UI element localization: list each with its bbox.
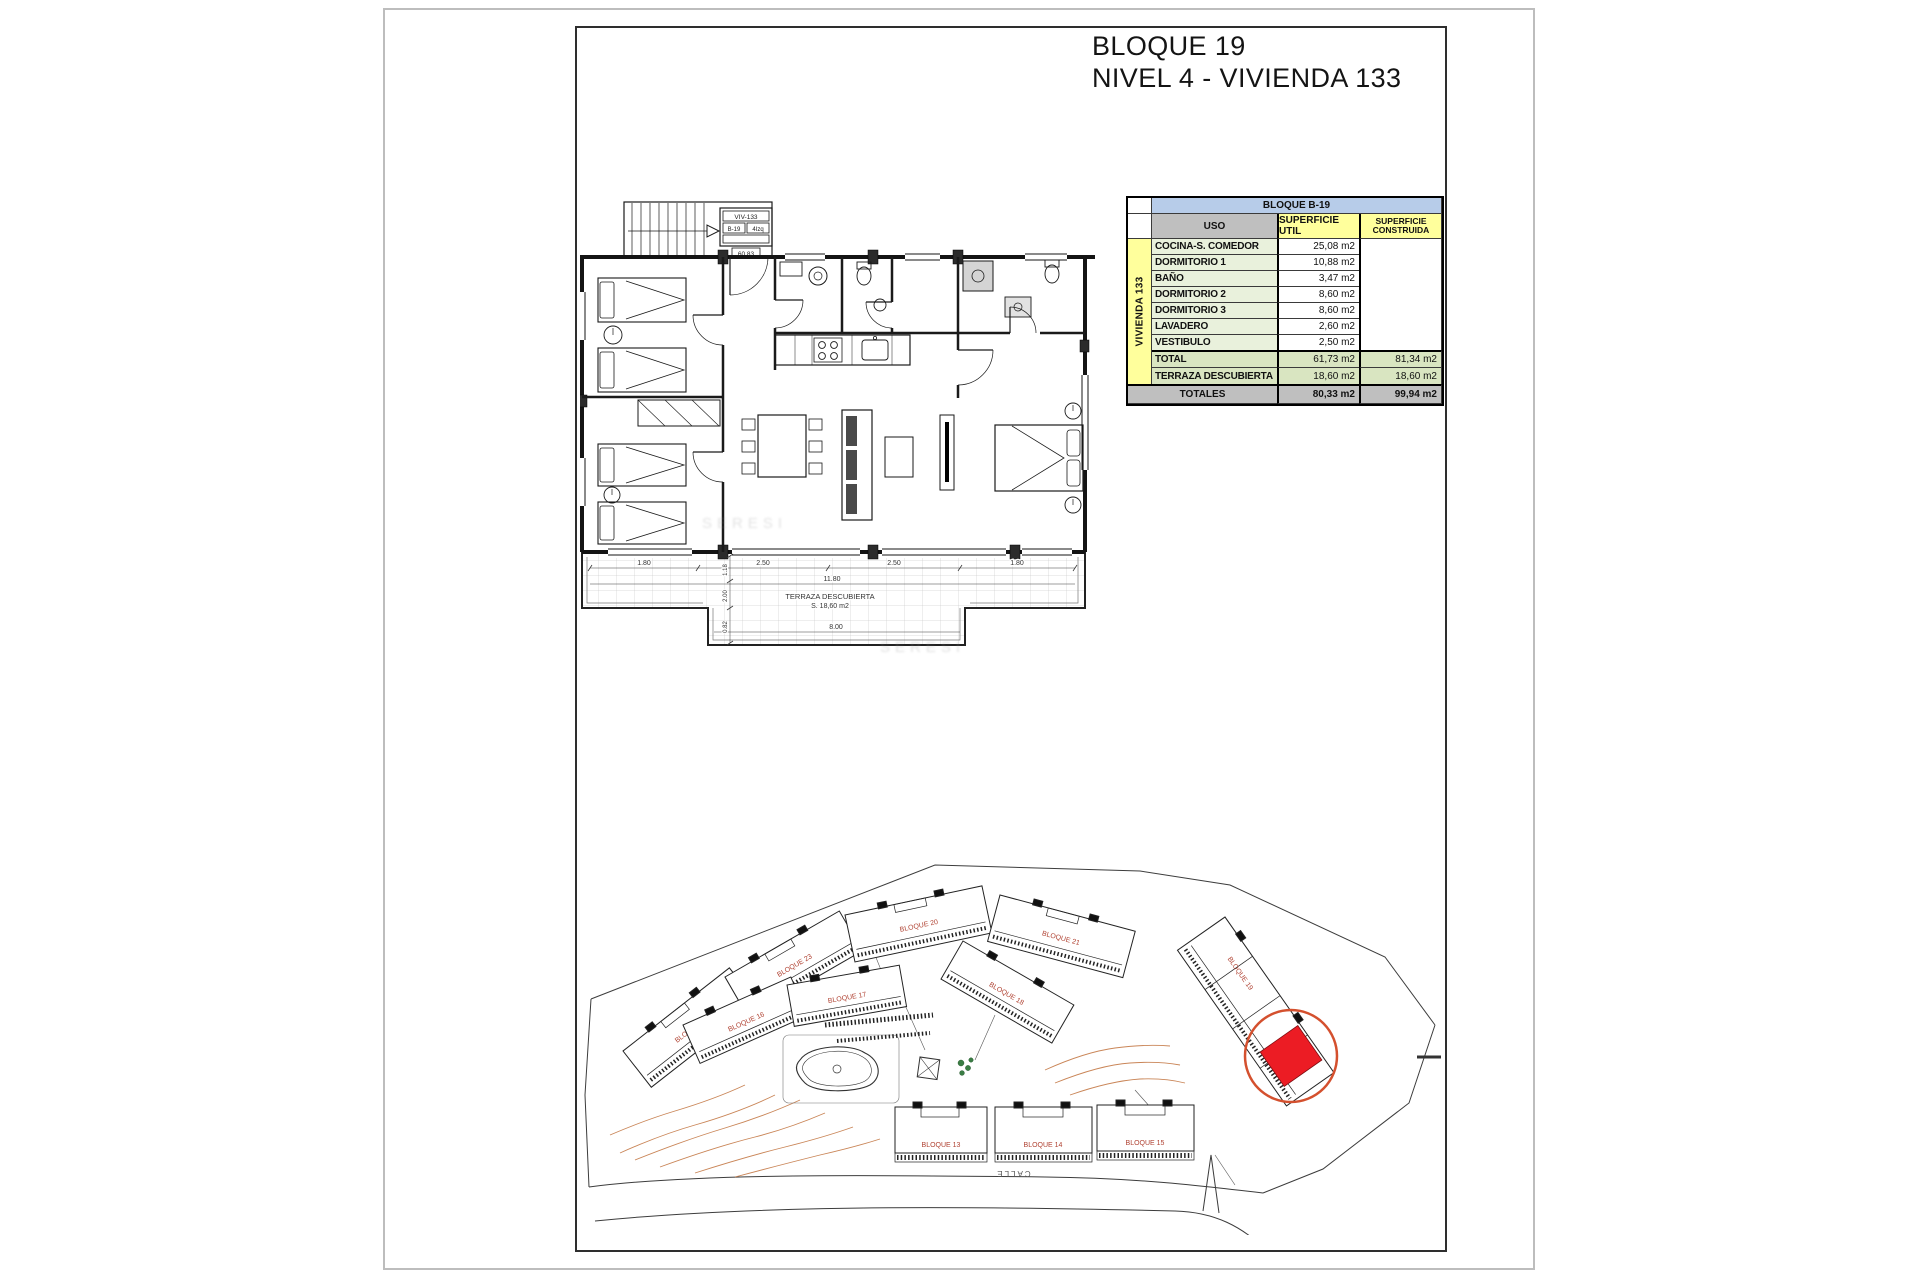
table-row-value: 8,60 m2: [1277, 303, 1360, 319]
table-row-value: 10,88 m2: [1277, 255, 1360, 271]
table-terraza-util: 18,60 m2: [1277, 368, 1360, 385]
table-construida-merged: [1359, 239, 1442, 351]
table-cell-empty: [1128, 214, 1152, 239]
window: [1025, 251, 1067, 263]
dim-text: 2.50: [887, 560, 901, 567]
table-totales-util: 80,33 m2: [1277, 384, 1360, 404]
double-bed: [995, 425, 1083, 491]
building-bloque-15: BLOQUE 15: [1097, 1100, 1194, 1160]
floorplan-drawing: VIV-133 B-19 4Izq 60.83: [580, 200, 1095, 668]
sink-icon: [862, 336, 888, 360]
table-row-label: LAVADERO: [1152, 319, 1278, 335]
washer-icon: [809, 267, 827, 285]
dim-text: 2.00: [723, 590, 729, 602]
toilet-icon: [857, 267, 871, 285]
table-terraza-label: TERRAZA DESCUBIERTA: [1152, 368, 1278, 385]
window: [580, 292, 588, 340]
table-row-label: DORMITORIO 1: [1152, 255, 1278, 271]
window: [608, 546, 692, 558]
landscaping-trees: [958, 1058, 973, 1076]
area-table: BLOQUE B-19 USO SUPERFICIE UTIL SUPERFIC…: [1126, 196, 1444, 406]
street-label: CALLE: [995, 1169, 1030, 1178]
pergolas: [825, 1015, 933, 1041]
block-label: BLOQUE 13: [922, 1142, 961, 1149]
table-col-util: SUPERFICIE UTIL: [1277, 214, 1360, 239]
exterior-walls: [580, 250, 1095, 559]
table-row-value: 8,60 m2: [1277, 287, 1360, 303]
table-rowgroup-vivienda: VIVIENDA 133: [1128, 239, 1152, 385]
building-bloque-19: BLOQUE 19: [1177, 914, 1338, 1106]
table-terraza-construida: 18,60 m2: [1359, 368, 1442, 385]
master-bathroom: [963, 260, 1059, 317]
dim-text: 1.80: [637, 560, 651, 567]
sofa: [842, 410, 872, 520]
table-row-label: DORMITORIO 3: [1152, 303, 1278, 319]
legend-unit-id: VIV-133: [734, 214, 758, 221]
laundry-room: [780, 262, 827, 285]
table-totales-construida: 99,94 m2: [1359, 384, 1442, 404]
bedroom-3: [598, 444, 686, 544]
bathrooms: [780, 260, 1059, 317]
table-row-label: COCINA-S. COMEDOR: [1152, 239, 1278, 255]
tv-console: [940, 415, 954, 490]
window: [785, 251, 825, 263]
terrace-name-label: TERRAZA DESCUBIERTA: [785, 592, 874, 601]
wc-room: [857, 262, 886, 311]
table-cell-empty: [1128, 198, 1152, 214]
window: [1079, 375, 1091, 470]
stove-icon: [814, 338, 842, 362]
table-total-construida: 81,34 m2: [1359, 350, 1442, 368]
title-block: BLOQUE 19 NIVEL 4 - VIVIENDA 133: [1092, 30, 1401, 95]
siteplan-drawing: BLOQUE 22 BLOQUE 23 BLOQUE 20 BLOQUE 21: [575, 855, 1447, 1235]
building-bloque-21: BLOQUE 21: [988, 890, 1137, 977]
table-col-uso: USO: [1152, 214, 1278, 239]
stairwell: [624, 202, 772, 257]
block-label: BLOQUE 14: [1024, 1142, 1063, 1149]
building-bloque-13: BLOQUE 13: [895, 1102, 987, 1162]
table-row-value: 2,50 m2: [1277, 335, 1360, 351]
table-row-value: 2,60 m2: [1277, 319, 1360, 335]
stair-direction-arrow: [707, 225, 719, 237]
block-label: BLOQUE 15: [1126, 1140, 1165, 1147]
slider-door: [882, 546, 1006, 558]
title-line-1: BLOQUE 19: [1092, 30, 1401, 62]
legend-position: 4Izq: [752, 227, 763, 233]
table-totales-label: TOTALES: [1128, 384, 1278, 404]
terrace-area-label: S. 18,60 m2: [811, 603, 849, 610]
kitchen: [775, 335, 910, 365]
living-dining: [742, 410, 954, 520]
coffee-table: [885, 437, 913, 477]
watermark: SERESI: [880, 639, 965, 656]
bedroom-2: [598, 278, 686, 392]
table-row-label: BAÑO: [1152, 271, 1278, 287]
dim-text: 2.50: [756, 560, 770, 567]
dim-text: 0.82: [723, 621, 729, 633]
wardrobe: [638, 400, 720, 426]
dining-table: [758, 415, 806, 477]
watermark: SERESI: [702, 515, 787, 532]
table-total-label: TOTAL: [1152, 350, 1278, 368]
building-bloque-14: BLOQUE 14: [995, 1102, 1092, 1162]
window: [905, 251, 940, 263]
pool: [783, 1035, 899, 1103]
pilaster: [580, 250, 1089, 559]
table-row-label: DORMITORIO 2: [1152, 287, 1278, 303]
window: [580, 458, 588, 506]
master-bedroom: [995, 403, 1083, 513]
legend-block-id: B-19: [728, 227, 741, 233]
window: [1022, 546, 1072, 558]
table-row-label: VESTIBULO: [1152, 335, 1278, 351]
table-total-util: 61,73 m2: [1277, 350, 1360, 368]
table-block-header: BLOQUE B-19: [1152, 198, 1442, 214]
dim-text: 11.80: [824, 576, 841, 583]
dim-text: 1.80: [1010, 560, 1024, 567]
drawing-canvas: BLOQUE 19 NIVEL 4 - VIVIENDA 133 BLOQUE …: [0, 0, 1920, 1280]
table-row-value: 3,47 m2: [1277, 271, 1360, 287]
dim-text: 8.00: [829, 624, 843, 631]
toilet-icon: [1045, 265, 1059, 283]
title-line-2: NIVEL 4 - VIVIENDA 133: [1092, 62, 1401, 94]
pool-kiosk: [917, 1057, 940, 1080]
table-col-construida: SUPERFICIE CONSTRUIDA: [1359, 214, 1442, 239]
table-row-value: 25,08 m2: [1277, 239, 1360, 255]
basin-icon: [874, 299, 886, 311]
slider-door: [732, 546, 860, 558]
dim-text: 1.18: [723, 564, 729, 576]
